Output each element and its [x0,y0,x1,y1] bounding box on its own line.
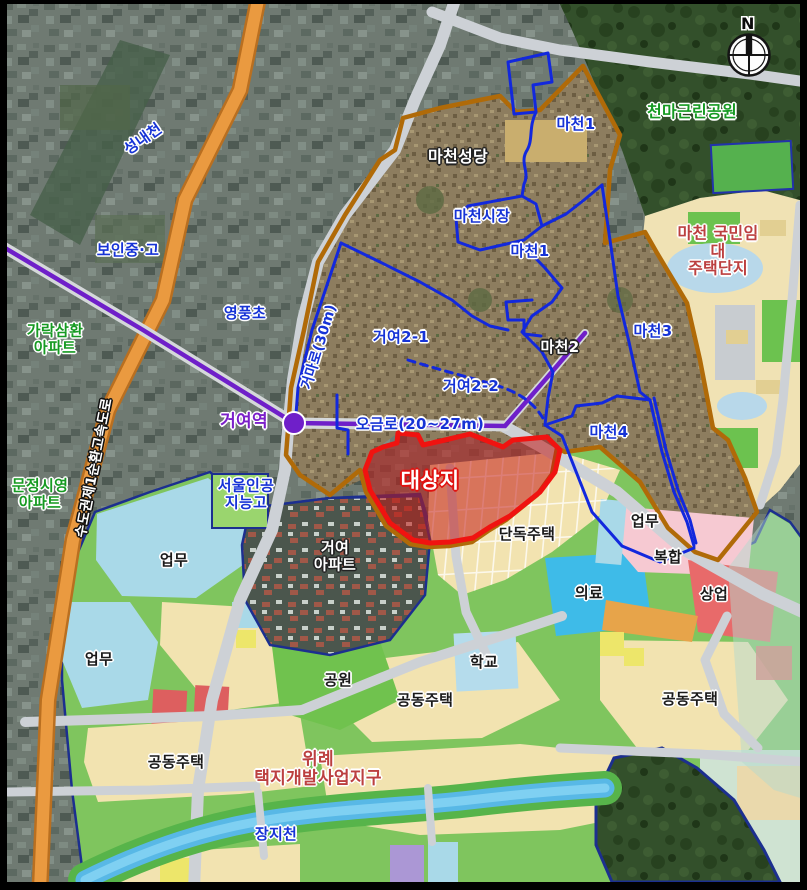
park-patch [60,85,130,130]
ai-school-field [212,474,268,528]
tree-patch [416,186,444,214]
sports-field [711,141,793,193]
tree-patch [468,288,492,312]
cathedral-grounds [505,120,587,162]
compass-north-label: N [741,14,754,33]
school-grounds-patch [95,215,165,263]
map-screenshot: 성내천보인중·고영풍초가락삼환 아파트문정시영 아파트수도권제1순환고속도로거여… [0,0,807,890]
map-canvas [0,0,807,890]
station-marker [283,412,305,434]
compass-rose [729,35,770,76]
